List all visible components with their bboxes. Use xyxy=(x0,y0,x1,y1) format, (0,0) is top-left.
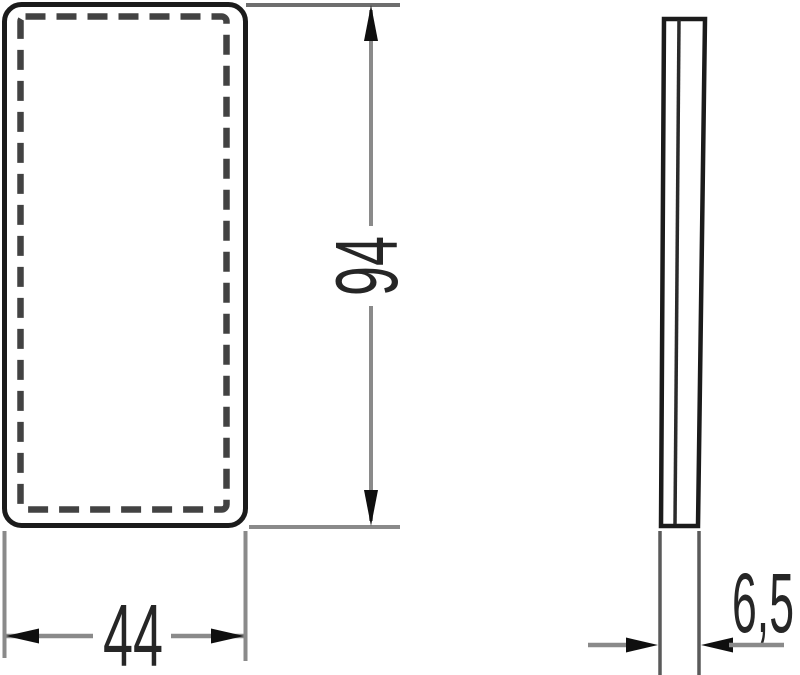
reflector-technical-drawing: 94 44 6,5 xyxy=(0,0,800,675)
height-arrow-down-icon xyxy=(364,490,378,526)
front-view xyxy=(5,5,246,526)
depth-dimension: 6,5 xyxy=(588,531,794,675)
width-arrow-left-icon xyxy=(6,629,39,644)
height-arrow-up-icon xyxy=(364,5,378,41)
width-arrow-right-icon xyxy=(211,629,244,644)
width-dimension: 44 xyxy=(5,531,246,675)
depth-arrow-left-icon xyxy=(701,638,733,653)
drawing-canvas: 94 44 6,5 xyxy=(0,0,800,675)
depth-arrow-right-icon xyxy=(626,638,658,653)
height-dimension-value: 94 xyxy=(317,236,416,296)
height-dimension: 94 xyxy=(246,5,416,527)
depth-dimension-value: 6,5 xyxy=(732,556,794,650)
side-view xyxy=(661,19,705,526)
front-view-outer-outline xyxy=(5,5,246,526)
width-dimension-value: 44 xyxy=(103,586,163,675)
side-view-outline xyxy=(661,19,705,526)
